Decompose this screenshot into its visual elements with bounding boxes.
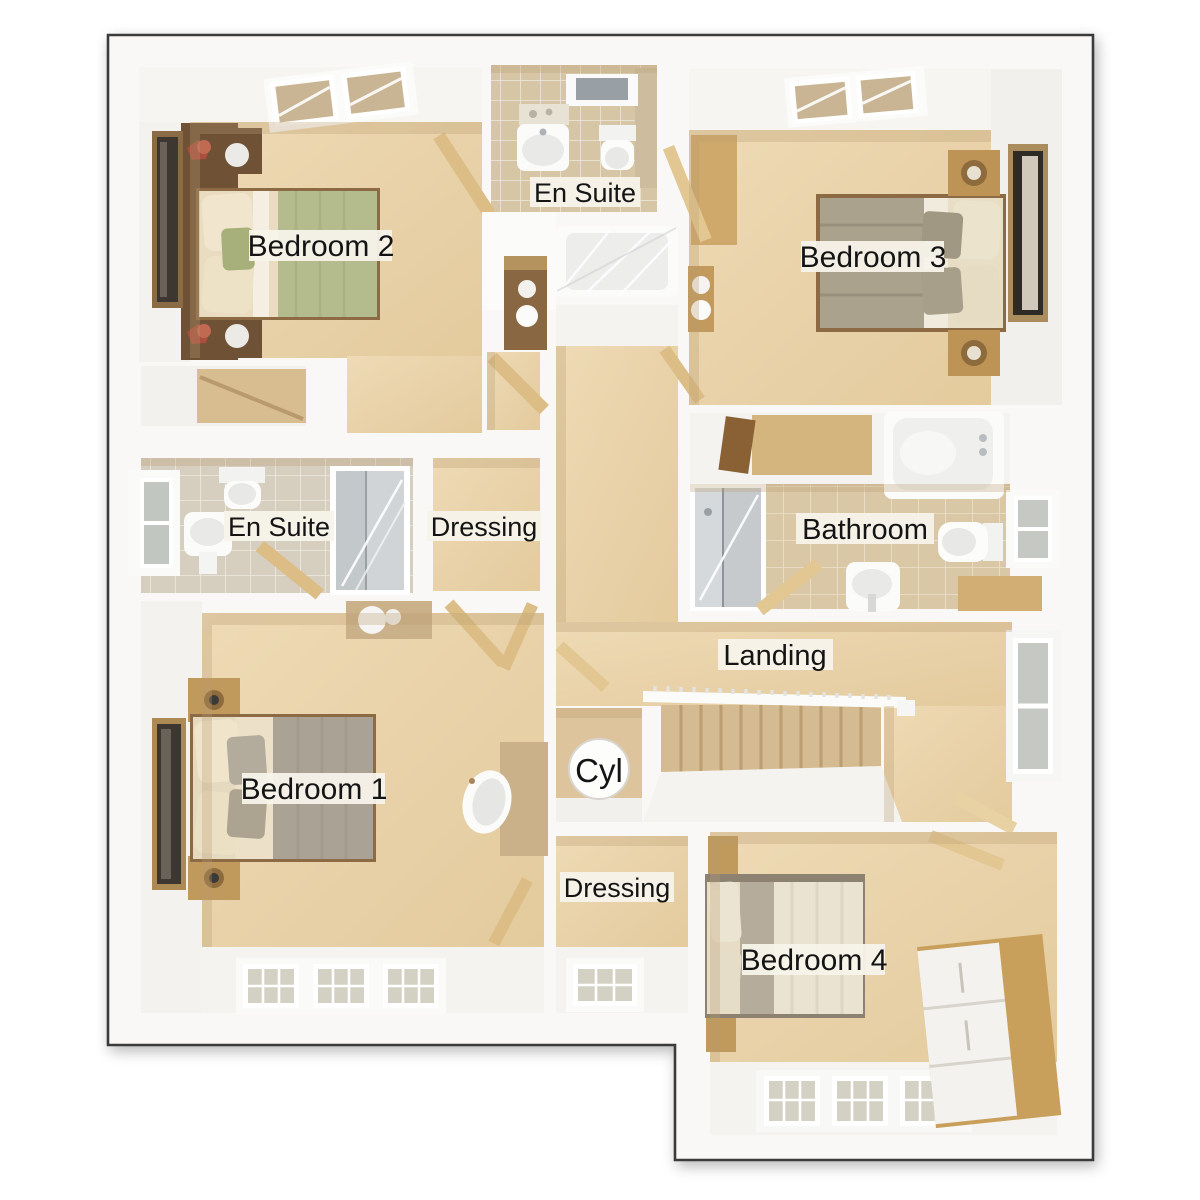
svg-text:Bedroom 3: Bedroom 3 [800,241,947,274]
svg-text:Dressing: Dressing [431,512,538,542]
svg-text:Landing: Landing [723,640,826,672]
svg-text:Bathroom: Bathroom [802,514,928,546]
svg-text:En Suite: En Suite [228,512,330,542]
svg-text:Cyl: Cyl [575,752,623,789]
svg-text:Dressing: Dressing [564,873,671,903]
svg-text:Bedroom 1: Bedroom 1 [241,773,388,806]
svg-text:En Suite: En Suite [534,178,636,208]
svg-text:Bedroom 2: Bedroom 2 [248,230,395,263]
svg-text:Bedroom 4: Bedroom 4 [741,944,888,977]
